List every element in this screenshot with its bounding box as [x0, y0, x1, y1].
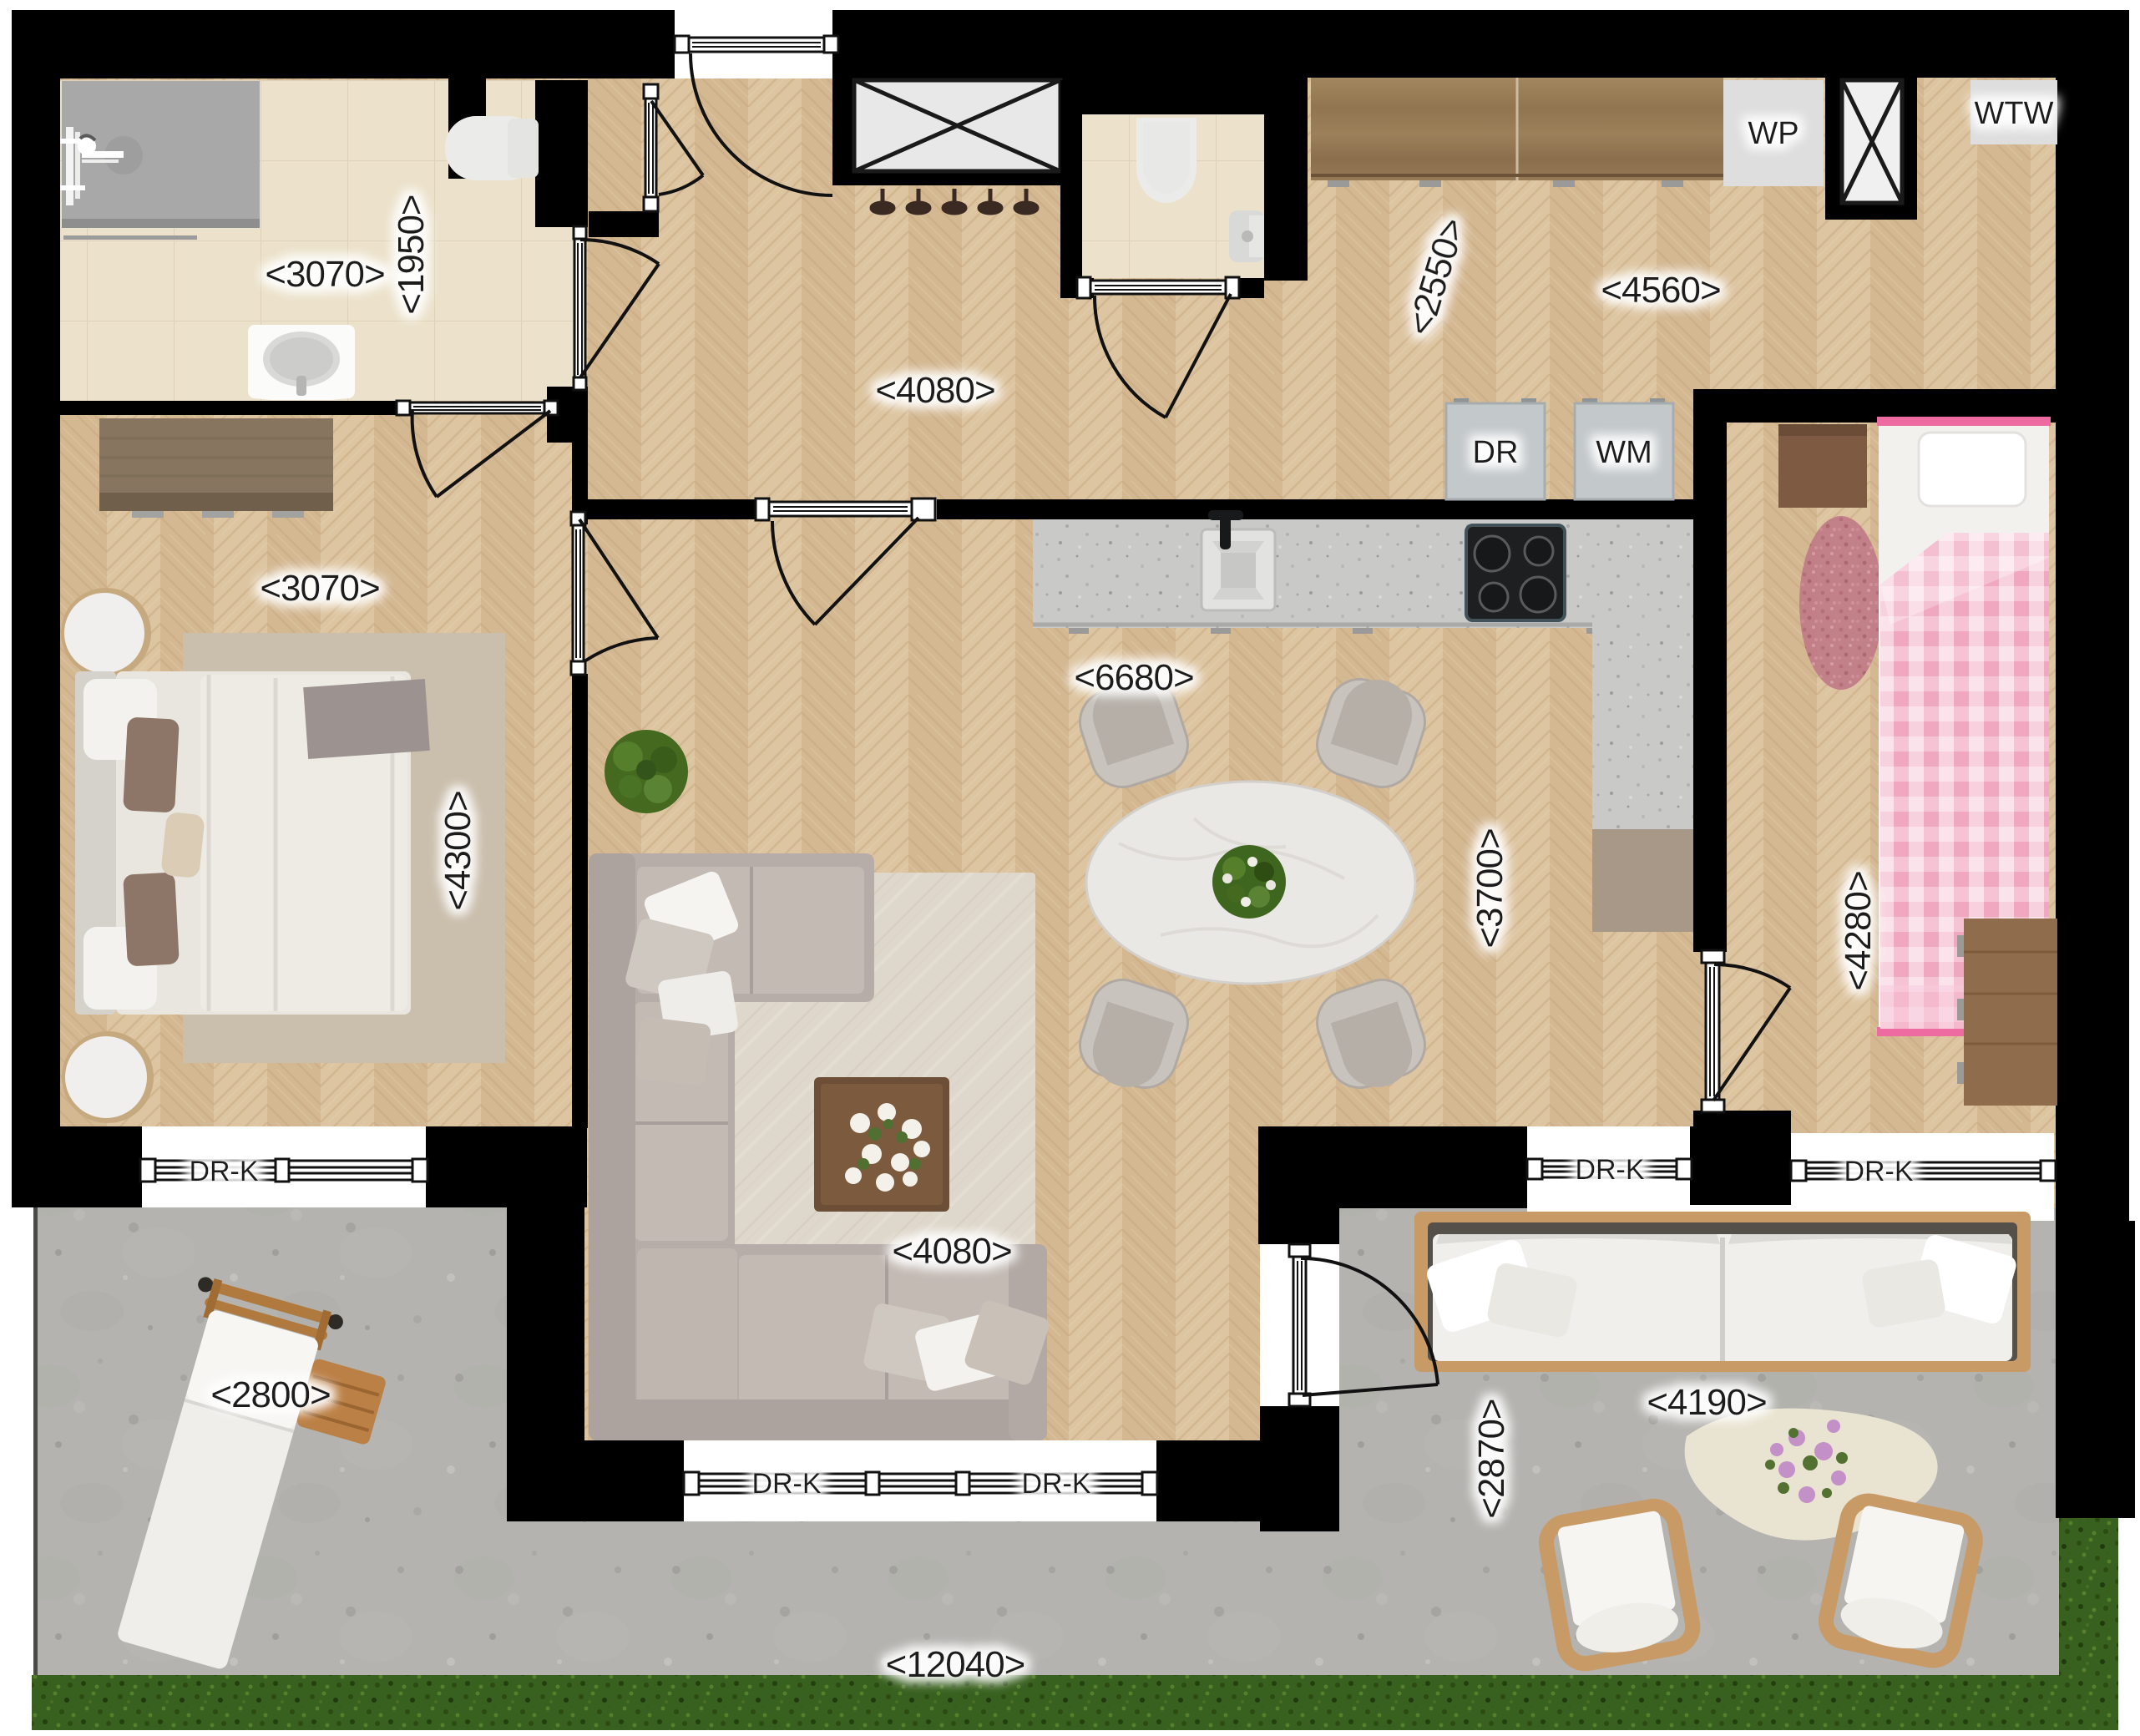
- svg-text:<2800>: <2800>: [210, 1374, 330, 1415]
- svg-text:<4280>: <4280>: [1838, 871, 1879, 990]
- svg-text:DR-K: DR-K: [751, 1468, 821, 1500]
- svg-text:DR-K: DR-K: [1844, 1156, 1913, 1187]
- svg-text:WM: WM: [1596, 435, 1652, 470]
- svg-text:WP: WP: [1748, 116, 1799, 151]
- svg-text:<3070>: <3070>: [265, 254, 384, 295]
- svg-text:<2870>: <2870>: [1471, 1399, 1512, 1518]
- svg-text:<4560>: <4560>: [1601, 270, 1720, 311]
- svg-text:<6680>: <6680>: [1074, 657, 1193, 698]
- svg-text:DR-K: DR-K: [1021, 1468, 1090, 1500]
- svg-text:<4190>: <4190>: [1647, 1382, 1766, 1423]
- svg-text:WTW: WTW: [1975, 96, 2054, 131]
- svg-text:DR: DR: [1473, 435, 1519, 470]
- svg-text:<1950>: <1950>: [391, 195, 432, 314]
- svg-text:DR-K: DR-K: [189, 1156, 258, 1187]
- svg-text:<4300>: <4300>: [438, 791, 478, 910]
- svg-text:<12040>: <12040>: [886, 1644, 1025, 1685]
- svg-text:DR-K: DR-K: [1575, 1154, 1644, 1186]
- svg-text:<3070>: <3070>: [260, 568, 379, 609]
- svg-text:<4080>: <4080>: [875, 370, 994, 411]
- svg-text:<3700>: <3700>: [1470, 828, 1510, 948]
- svg-text:<4080>: <4080>: [892, 1231, 1011, 1272]
